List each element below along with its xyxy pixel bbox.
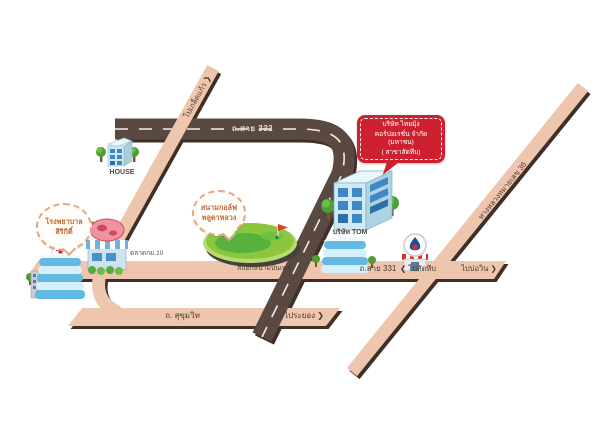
gas-station-icon <box>402 234 428 271</box>
map-artwork <box>0 0 600 424</box>
tree-icon <box>96 147 106 162</box>
hospital-badge: โรงพยาบาล สิริกิติ์ <box>36 203 92 251</box>
golf-badge-line2: พลูตาหลวง <box>202 214 237 222</box>
callout-line2: คอร์ปอเรชั่น จำกัด (มหาชน) <box>361 131 441 147</box>
golf-badge: สนามกอล์ฟ พลูตาหลวง <box>192 190 246 236</box>
hospital-badge-line2: สิริกิติ์ <box>55 228 72 236</box>
company-callout: บริษัท ไทยมุ้ง คอร์ปอเรชั่น จำกัด (มหาชน… <box>357 115 445 163</box>
company-callout-text: บริษัท ไทยมุ้ง คอร์ปอเรชั่น จำกัด (มหาชน… <box>360 118 442 160</box>
callout-line1: บริษัท ไทยมุ้ง <box>361 121 441 129</box>
hospital-badge-line1: โรงพยาบาล <box>45 218 82 226</box>
sattahip-location-map: ถ.สาย 332 ไปเกล็ดแก้ว ❯ ทางหลวงหมายเลข 3… <box>0 0 600 424</box>
golf-badge-line1: สนามกอล์ฟ <box>201 204 237 212</box>
callout-line3: ( สาขาสัตหีบ) <box>361 149 441 157</box>
